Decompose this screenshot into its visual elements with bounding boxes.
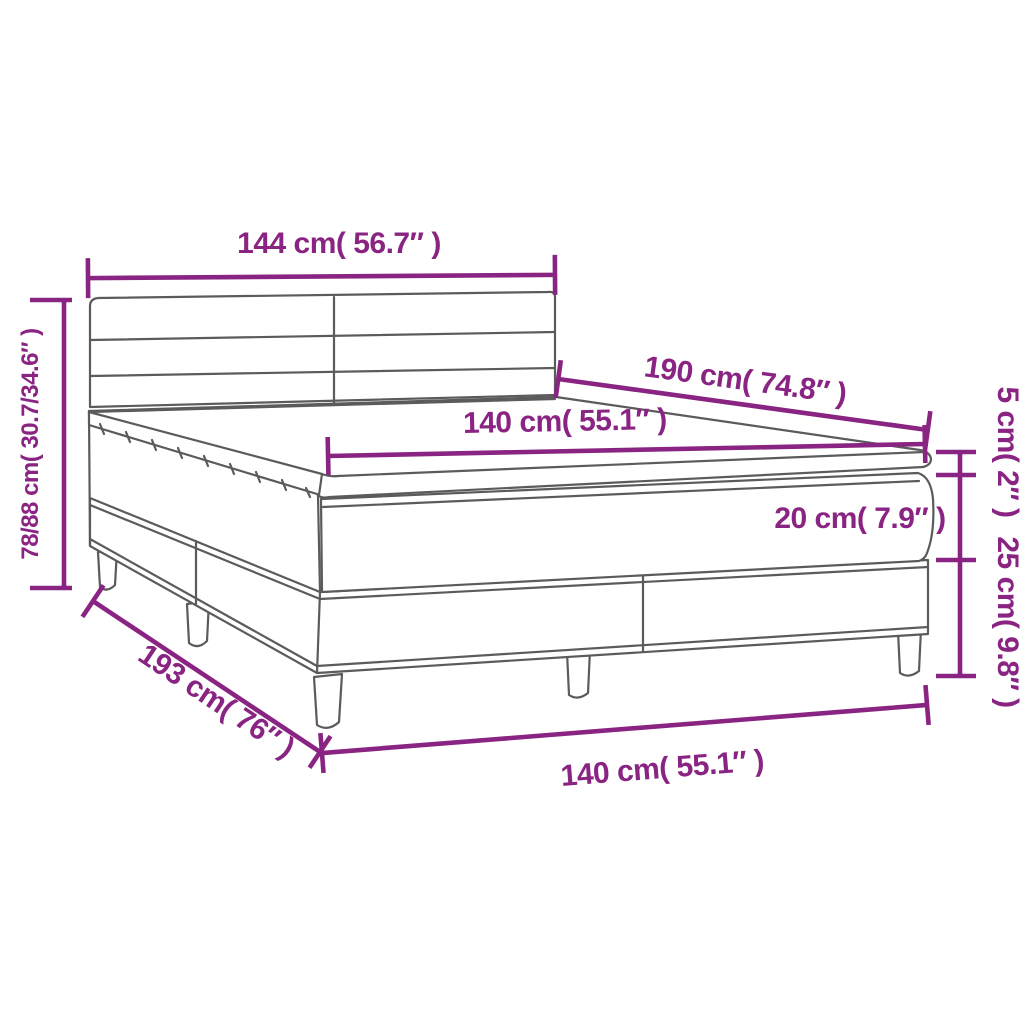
dim-label-mattress-height: 20 cm( 7.9″ ) <box>774 502 945 535</box>
headboard <box>90 292 555 407</box>
dim-label-headboard-width: 144 cm( 56.7″ ) <box>237 227 441 260</box>
dim-label-headboard-height: 78/88 cm( 30.7/34.6″ ) <box>17 328 44 559</box>
bed-left-vertical-edge <box>89 411 90 546</box>
headboard-outline <box>90 292 555 407</box>
dim-label-frame-width-bottom: 140 cm( 55.1″ ) <box>559 744 765 793</box>
bed-dimension-diagram: 144 cm( 56.7″ ) 78/88 cm( 30.7/34.6″ ) 1… <box>0 0 1024 1024</box>
dim-label-mattress-length: 190 cm( 74.8″ ) <box>642 350 848 411</box>
dim-line-headboard-width <box>88 255 555 298</box>
dim-label-base-height: 25 cm( 9.8″ ) <box>991 536 1024 707</box>
mattress-corner-edge <box>318 496 320 592</box>
diagram-canvas: 144 cm( 56.7″ ) 78/88 cm( 30.7/34.6″ ) 1… <box>0 0 1024 1024</box>
dim-line-height-stack <box>936 452 976 676</box>
bed-leg <box>314 674 342 728</box>
dim-label-mattress-width-top: 140 cm( 55.1″ ) <box>463 403 667 440</box>
dim-label-frame-length: 193 cm( 76″ ) <box>132 638 300 765</box>
dim-label-topper-height: 5 cm( 2″ ) <box>991 386 1024 517</box>
